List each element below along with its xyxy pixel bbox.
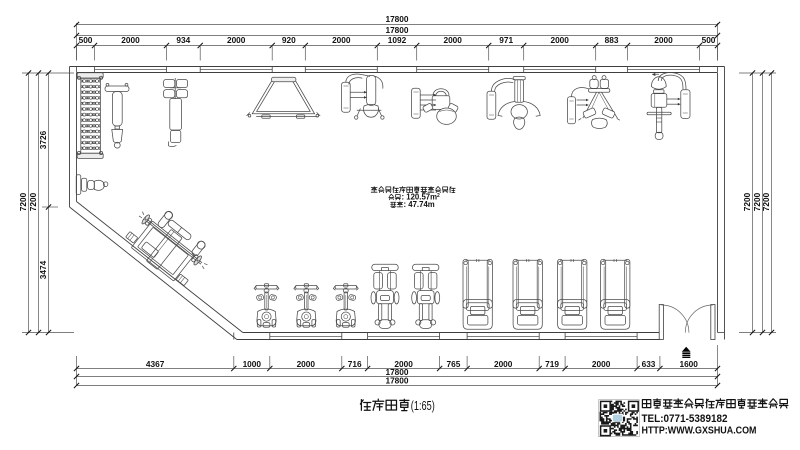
svg-text:17800: 17800 xyxy=(385,14,408,24)
svg-text:883: 883 xyxy=(605,35,619,45)
svg-text:971: 971 xyxy=(499,35,513,45)
svg-text:2000: 2000 xyxy=(494,359,513,369)
svg-text:920: 920 xyxy=(282,35,296,45)
svg-text:7200: 7200 xyxy=(18,192,28,211)
svg-text:TEL:0771-5389182: TEL:0771-5389182 xyxy=(642,413,728,425)
svg-text:2000: 2000 xyxy=(227,35,246,45)
svg-text:719: 719 xyxy=(545,359,559,369)
svg-text:2000: 2000 xyxy=(297,359,316,369)
svg-text:2000: 2000 xyxy=(121,35,140,45)
svg-text:633: 633 xyxy=(642,359,656,369)
svg-text:500: 500 xyxy=(79,35,93,45)
svg-text:HTTP:WWW.GXSHUA.COM: HTTP:WWW.GXSHUA.COM xyxy=(642,426,757,437)
svg-text:2000: 2000 xyxy=(592,359,611,369)
svg-text:2000: 2000 xyxy=(550,35,569,45)
svg-text:(1:65): (1:65) xyxy=(411,398,435,413)
svg-text:7200: 7200 xyxy=(761,192,771,211)
svg-text:2000: 2000 xyxy=(654,35,673,45)
svg-text:1000: 1000 xyxy=(243,359,262,369)
svg-text:2000: 2000 xyxy=(332,35,351,45)
svg-text:716: 716 xyxy=(348,359,362,369)
svg-text:: 47.74m: : 47.74m xyxy=(404,200,435,209)
svg-text:4367: 4367 xyxy=(146,359,165,369)
svg-text:2: 2 xyxy=(437,193,440,199)
svg-text:2000: 2000 xyxy=(443,35,462,45)
svg-text:7200: 7200 xyxy=(28,192,38,211)
svg-text:500: 500 xyxy=(702,35,716,45)
svg-text:934: 934 xyxy=(176,35,190,45)
svg-text:17800: 17800 xyxy=(385,25,408,35)
svg-text:1600: 1600 xyxy=(679,359,698,369)
svg-text:3726: 3726 xyxy=(38,130,48,149)
svg-text:765: 765 xyxy=(446,359,460,369)
svg-text:7200: 7200 xyxy=(742,192,752,211)
svg-text:3474: 3474 xyxy=(38,260,48,279)
svg-text:17800: 17800 xyxy=(385,376,408,386)
svg-text:1092: 1092 xyxy=(388,35,407,45)
